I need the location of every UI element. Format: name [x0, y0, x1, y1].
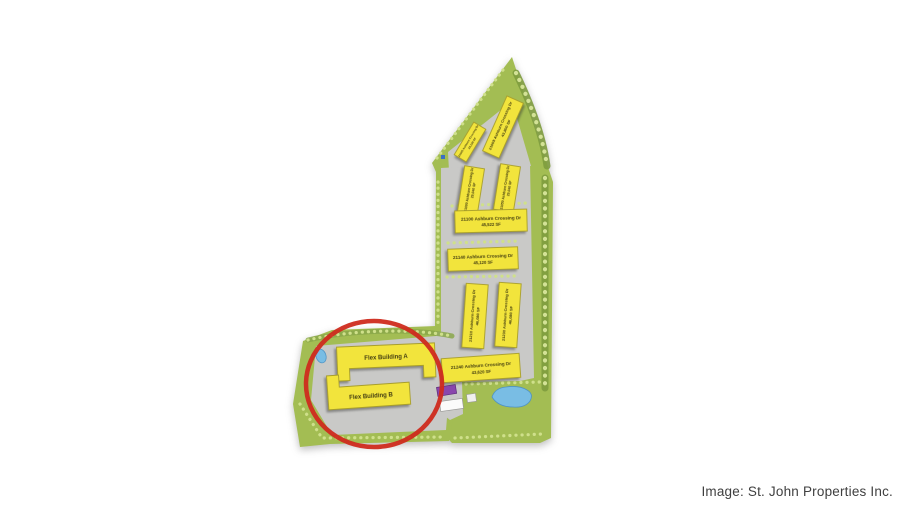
building-21100: 21100 Ashburn Crossing Dr 45,522 SF — [455, 209, 528, 233]
white-building-2 — [466, 393, 476, 402]
site-plan-map: 21045 Ashburn Crossing Dr 23,120 SF 2100… — [0, 0, 900, 506]
building-21140: 21140 Ashburn Crossing Dr 45,120 SF — [448, 247, 519, 271]
svg-text:45,120 SF: 45,120 SF — [473, 260, 493, 266]
article-image: 21045 Ashburn Crossing Dr 23,120 SF 2100… — [0, 0, 900, 506]
building-21210: 21210 Ashburn Crossing Dr 46,080 SF — [462, 283, 488, 348]
map-marker — [441, 155, 445, 159]
svg-text:45,522 SF: 45,522 SF — [481, 222, 501, 228]
building-21230: 21230 Ashburn Crossing Dr 46,080 SF — [495, 282, 521, 347]
image-credit: Image: St. John Properties Inc. — [493, 484, 893, 499]
building-21240: 21240 Ashburn Crossing Dr 43,620 SF — [441, 353, 520, 382]
